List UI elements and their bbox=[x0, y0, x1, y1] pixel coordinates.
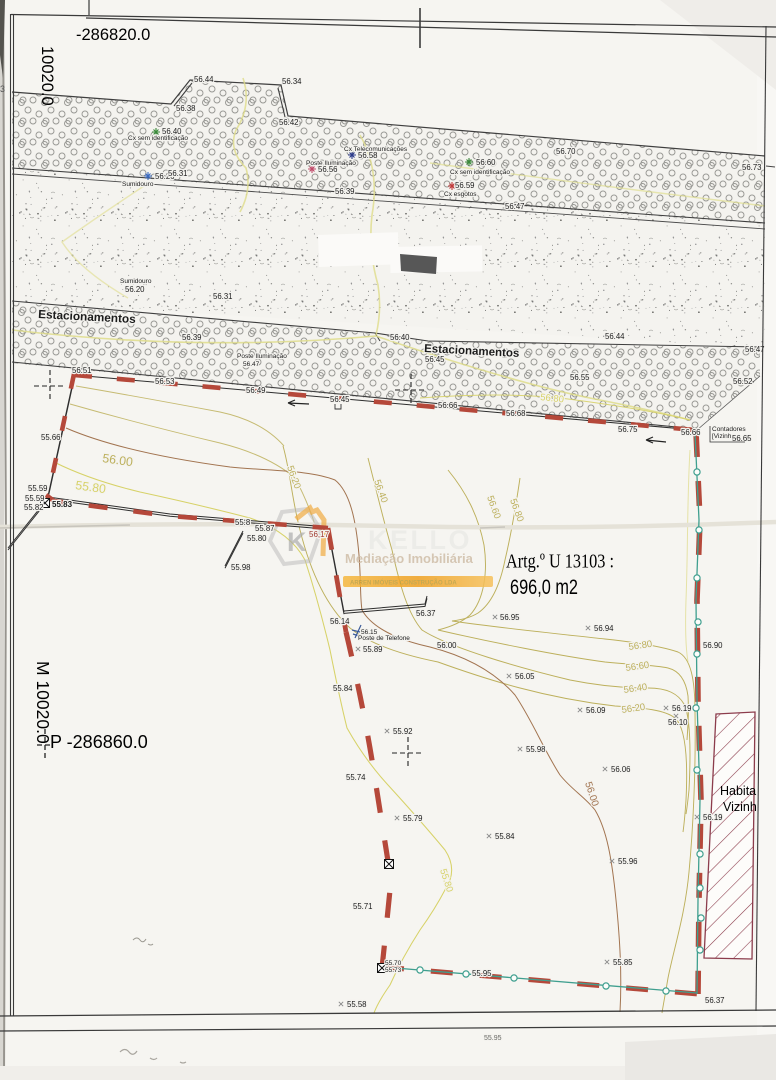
svg-text:55.58: 55.58 bbox=[347, 1000, 367, 1009]
svg-text:56.90: 56.90 bbox=[703, 641, 723, 650]
svg-text:56.68: 56.68 bbox=[506, 409, 526, 418]
svg-text:55.8: 55.8 bbox=[235, 518, 250, 527]
svg-text:56.37: 56.37 bbox=[705, 996, 725, 1005]
svg-text:56.59: 56.59 bbox=[455, 181, 475, 190]
svg-text:56.51: 56.51 bbox=[72, 366, 92, 375]
svg-text:56.31: 56.31 bbox=[213, 292, 233, 301]
svg-text:55.84: 55.84 bbox=[495, 832, 515, 841]
svg-text:56.52: 56.52 bbox=[733, 377, 753, 386]
svg-text:56.09: 56.09 bbox=[586, 706, 606, 715]
svg-text:56.39: 56.39 bbox=[182, 333, 202, 342]
svg-text:56.39: 56.39 bbox=[335, 187, 355, 196]
svg-text:56.45: 56.45 bbox=[425, 355, 445, 364]
svg-text:Artg.º U 13103 :: Artg.º U 13103 : bbox=[506, 551, 614, 573]
svg-text:55.74: 55.74 bbox=[346, 773, 366, 782]
svg-text:56.73: 56.73 bbox=[742, 163, 762, 172]
svg-text:55.95: 55.95 bbox=[472, 969, 492, 978]
svg-text:P -286860.0: P -286860.0 bbox=[50, 732, 148, 752]
svg-text:56.94: 56.94 bbox=[594, 624, 614, 633]
svg-text:56.49: 56.49 bbox=[246, 386, 266, 395]
svg-text:55.84: 55.84 bbox=[333, 684, 353, 693]
svg-text:55.83: 55.83 bbox=[52, 500, 73, 509]
svg-text:56.19: 56.19 bbox=[672, 704, 692, 713]
svg-text:56.55: 56.55 bbox=[570, 373, 590, 382]
svg-text:56.75: 56.75 bbox=[618, 425, 638, 434]
svg-text:56.47: 56.47 bbox=[745, 345, 765, 354]
svg-text:Contadores: Contadores bbox=[712, 426, 746, 433]
svg-text:55.98: 55.98 bbox=[231, 563, 251, 572]
svg-text:ARREN IMÓVEIS CONSTRUÇÃO LDA: ARREN IMÓVEIS CONSTRUÇÃO LDA bbox=[350, 579, 457, 587]
svg-text:56.37: 56.37 bbox=[416, 609, 436, 618]
svg-text:3: 3 bbox=[0, 84, 5, 94]
svg-text:56.56: 56.56 bbox=[318, 165, 338, 174]
svg-text:55.98: 55.98 bbox=[526, 745, 546, 754]
svg-text:Sumidouro: Sumidouro bbox=[120, 278, 152, 285]
svg-text:55.59: 55.59 bbox=[28, 484, 48, 493]
svg-text:Poste de Telefone: Poste de Telefone bbox=[358, 635, 410, 642]
svg-text:56.44: 56.44 bbox=[605, 332, 625, 341]
svg-text:55.59: 55.59 bbox=[25, 494, 45, 503]
svg-text:56.34: 56.34 bbox=[282, 77, 302, 86]
svg-text:Sumidouro: Sumidouro bbox=[122, 181, 154, 188]
svg-text:K: K bbox=[287, 527, 307, 557]
svg-text:55.96: 55.96 bbox=[618, 857, 638, 866]
svg-text:-286820.0: -286820.0 bbox=[76, 26, 150, 44]
svg-text:55.92: 55.92 bbox=[393, 727, 413, 736]
svg-text:56.38: 56.38 bbox=[176, 104, 196, 113]
svg-text:696,0 m2: 696,0 m2 bbox=[510, 576, 578, 599]
svg-text:56.47: 56.47 bbox=[243, 361, 260, 368]
svg-text:55.85: 55.85 bbox=[613, 958, 633, 967]
svg-text:56.40: 56.40 bbox=[390, 333, 410, 342]
svg-text:Habita: Habita bbox=[720, 784, 756, 798]
svg-text:56.53: 56.53 bbox=[155, 377, 175, 386]
svg-text:55.66: 55.66 bbox=[41, 433, 61, 442]
svg-text:56.06: 56.06 bbox=[611, 765, 631, 774]
svg-text:55.80: 55.80 bbox=[247, 534, 267, 543]
svg-text:56.70: 56.70 bbox=[556, 147, 576, 156]
svg-text:55.70: 55.70 bbox=[385, 960, 402, 967]
svg-text:55.89: 55.89 bbox=[363, 645, 383, 654]
svg-text:56.19: 56.19 bbox=[703, 813, 723, 822]
svg-text:56.14: 56.14 bbox=[330, 617, 350, 626]
svg-text:Mediação Imobiliária: Mediação Imobiliária bbox=[345, 551, 474, 566]
svg-text:56.10: 56.10 bbox=[668, 718, 688, 727]
svg-text:Cx esgotos: Cx esgotos bbox=[444, 191, 477, 198]
svg-text:56.44: 56.44 bbox=[194, 75, 214, 84]
svg-text:55.71: 55.71 bbox=[353, 902, 373, 911]
svg-text:10020.0: 10020.0 bbox=[38, 46, 56, 106]
svg-text:56.47: 56.47 bbox=[505, 202, 525, 211]
svg-text:56.66: 56.66 bbox=[681, 428, 701, 437]
svg-text:56.45: 56.45 bbox=[330, 395, 350, 404]
svg-text:Vizinh: Vizinh bbox=[723, 800, 757, 814]
svg-text:56.58: 56.58 bbox=[358, 151, 378, 160]
svg-text:56.66: 56.66 bbox=[438, 401, 458, 410]
svg-text:55.87: 55.87 bbox=[255, 524, 275, 533]
svg-text:55.95: 55.95 bbox=[484, 1035, 502, 1042]
svg-text:55.73: 55.73 bbox=[385, 967, 402, 974]
svg-text:56.31: 56.31 bbox=[168, 169, 188, 178]
svg-text:56.42: 56.42 bbox=[279, 118, 299, 127]
svg-text:55.82: 55.82 bbox=[24, 503, 44, 512]
svg-text:Cx sem identificação: Cx sem identificação bbox=[128, 135, 188, 142]
svg-text:56.60: 56.60 bbox=[476, 158, 496, 167]
svg-text:56.20: 56.20 bbox=[125, 285, 145, 294]
svg-text:56.95: 56.95 bbox=[500, 613, 520, 622]
svg-text:55.79: 55.79 bbox=[403, 814, 423, 823]
svg-text:Cx sem identificação: Cx sem identificação bbox=[450, 169, 510, 176]
svg-text:56.00: 56.00 bbox=[437, 641, 457, 650]
svg-text:56.05: 56.05 bbox=[515, 672, 535, 681]
svg-text:Poste Iluminação: Poste Iluminação bbox=[237, 353, 287, 360]
svg-text:56,17: 56,17 bbox=[309, 530, 330, 539]
